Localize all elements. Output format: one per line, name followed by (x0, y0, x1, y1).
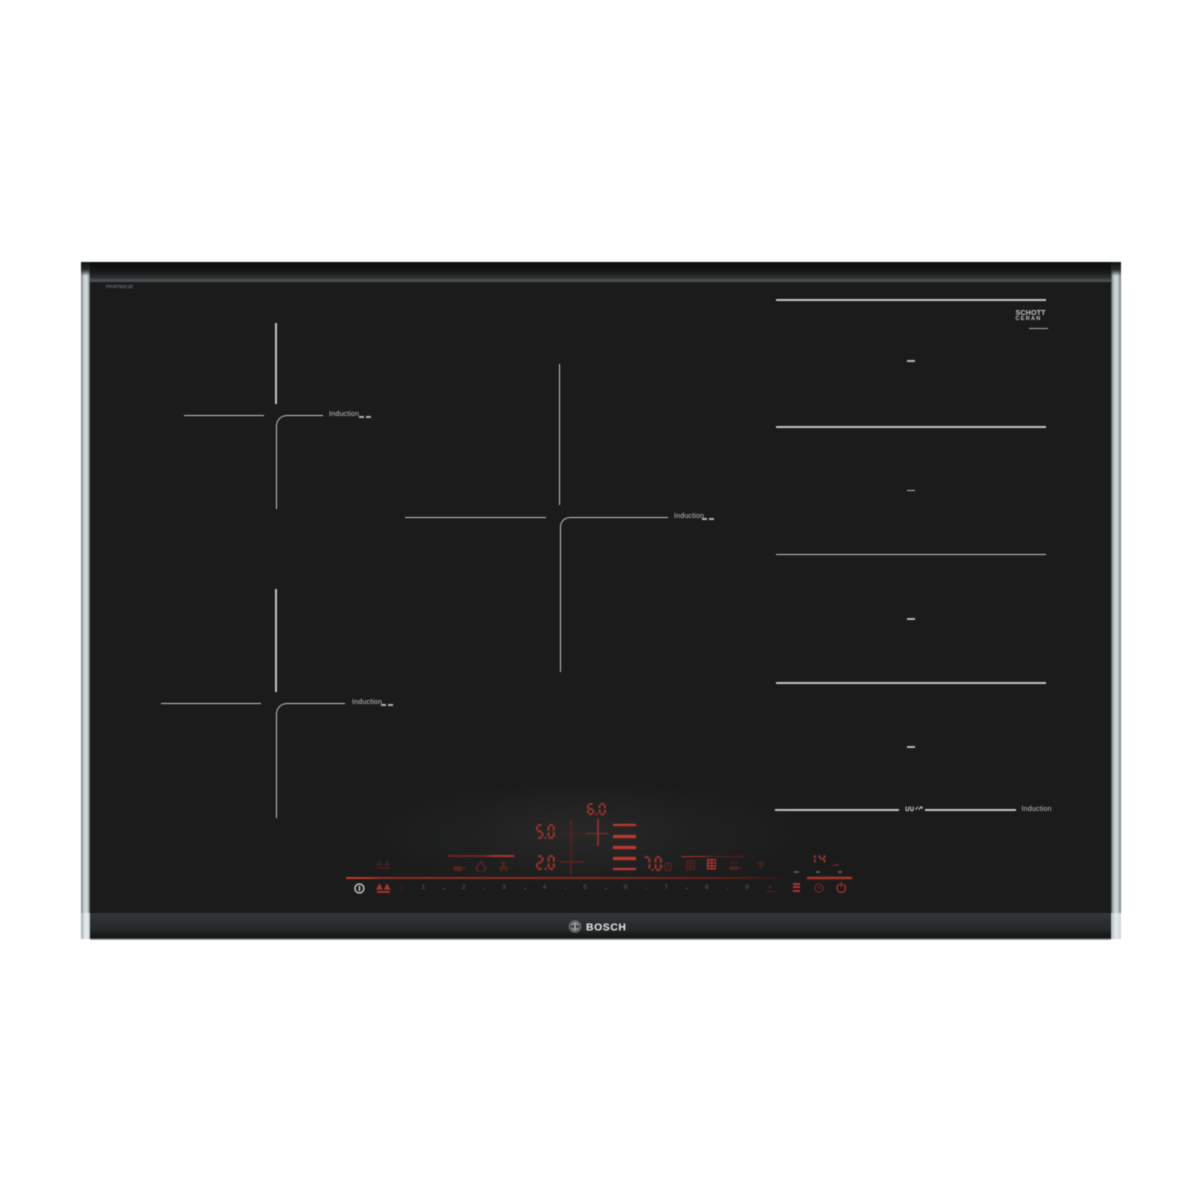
svg-text:BOSCH: BOSCH (586, 922, 627, 933)
